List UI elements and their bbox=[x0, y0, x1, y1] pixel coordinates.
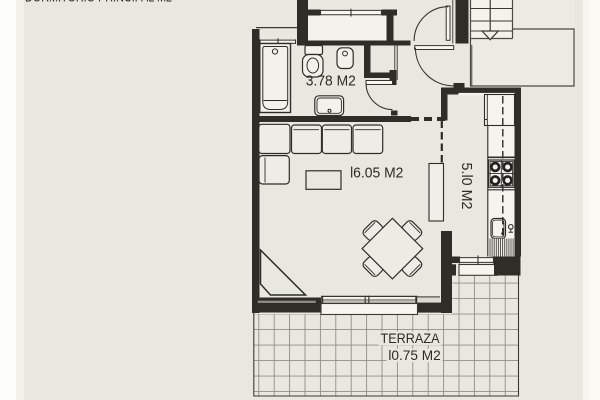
svg-text:DORMITORIO PRINCIPAL M2: DORMITORIO PRINCIPAL M2 bbox=[25, 0, 172, 4]
svg-text:5.l0 М2: 5.l0 М2 bbox=[458, 163, 474, 210]
svg-text:l0.75 М2: l0.75 М2 bbox=[388, 347, 441, 363]
svg-text:3.78 М2: 3.78 М2 bbox=[306, 73, 356, 89]
svg-text:l6.05 М2: l6.05 М2 bbox=[350, 165, 403, 182]
svg-text:TERRAZA: TERRAZA bbox=[381, 330, 441, 346]
